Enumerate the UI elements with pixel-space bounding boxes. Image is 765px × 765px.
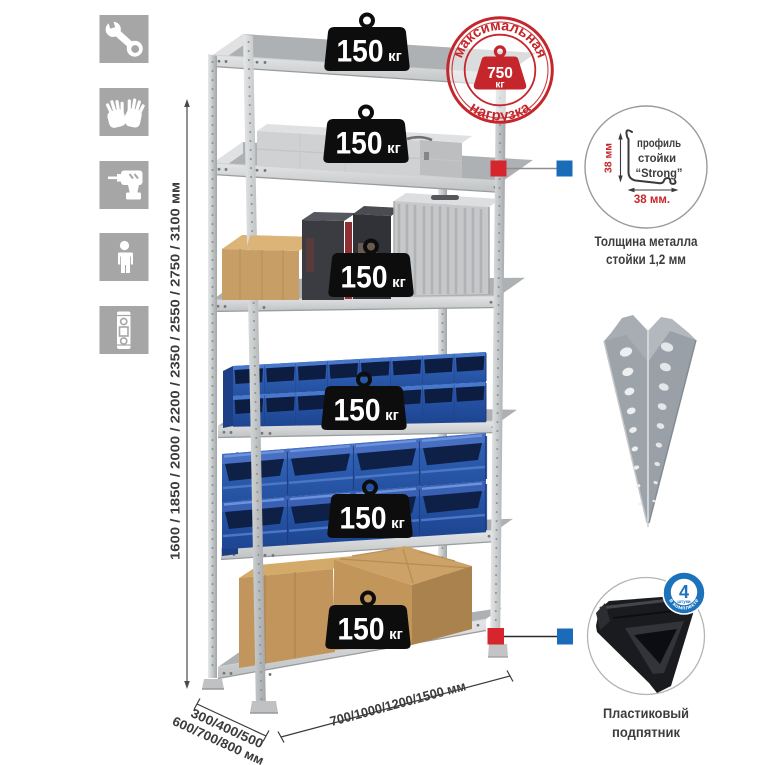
svg-text:150: 150 [336, 125, 383, 161]
svg-text:профиль: профиль [637, 138, 681, 150]
svg-text:38 мм: 38 мм [603, 143, 615, 173]
svg-text:“Strong”: “Strong” [636, 168, 683, 180]
svg-text:кг: кг [388, 48, 402, 65]
svg-text:стойки: стойки [638, 153, 676, 165]
svg-text:150: 150 [341, 259, 388, 295]
svg-text:150: 150 [340, 500, 387, 536]
svg-text:150: 150 [338, 611, 385, 647]
svg-text:38 мм.: 38 мм. [634, 194, 670, 206]
svg-text:кг: кг [389, 626, 403, 643]
svg-text:150: 150 [337, 33, 384, 69]
svg-text:кг: кг [391, 515, 405, 532]
svg-text:1600 / 1850 / 2000 / 2200 / 23: 1600 / 1850 / 2000 / 2200 / 2350 / 2550 … [168, 182, 182, 560]
svg-text:кг: кг [385, 407, 399, 424]
svg-text:штуки: штуки [677, 599, 691, 604]
svg-text:кг: кг [392, 274, 406, 291]
svg-text:кг: кг [495, 80, 504, 91]
svg-text:Толщина металла: Толщина металла [595, 234, 698, 250]
svg-text:150: 150 [334, 392, 381, 428]
svg-text:стойки 1,2 мм: стойки 1,2 мм [606, 252, 686, 268]
svg-text:Пластиковый: Пластиковый [603, 706, 689, 722]
svg-text:кг: кг [387, 140, 401, 157]
svg-text:подпятник: подпятник [612, 725, 681, 741]
